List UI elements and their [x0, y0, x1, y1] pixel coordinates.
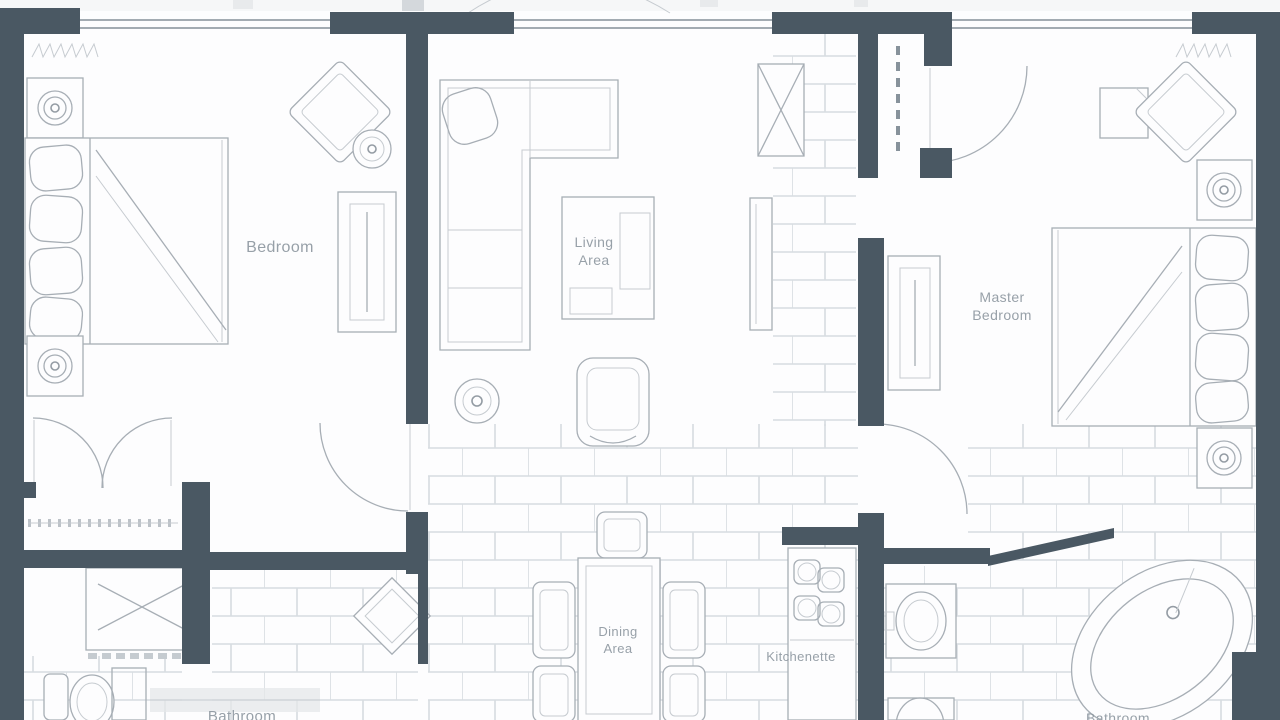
wall [924, 32, 952, 66]
wall [330, 12, 514, 34]
side-table [353, 130, 391, 168]
dining-table [578, 558, 660, 720]
vanity-sink [884, 584, 956, 658]
wall [406, 512, 428, 574]
cut-off-mark [854, 0, 868, 7]
top-margin [0, 0, 1280, 11]
wall [920, 148, 952, 178]
tv-console [750, 198, 772, 330]
wall [858, 238, 884, 426]
wall [884, 548, 990, 564]
dining-area-label-line1: Dining [598, 624, 637, 639]
dining-area-label-line2: Area [603, 641, 632, 656]
vanity-sink [888, 698, 954, 720]
bed [1052, 228, 1256, 426]
dresser [888, 256, 940, 390]
dining-chair [663, 582, 705, 658]
wall [772, 12, 952, 34]
living-area-label-line1: Living [575, 234, 614, 250]
cut-off-mark [402, 0, 424, 11]
dining-chair [533, 582, 575, 658]
wall [406, 32, 428, 424]
nightstand [27, 336, 83, 396]
wall [208, 552, 408, 570]
bed [25, 138, 228, 344]
wall [1232, 652, 1280, 720]
wall-counter-edge [782, 527, 880, 545]
living-area-label-line2: Area [578, 252, 609, 268]
master-bedroom-label-line1: Master [979, 289, 1024, 305]
floor-plan: Bedroom Living Area Master Bedroom Dinin… [0, 0, 1280, 720]
dining-chair [597, 512, 647, 558]
toilet [44, 674, 114, 720]
wall [0, 8, 80, 34]
dining-chair [533, 666, 575, 720]
cut-off-mark [700, 0, 718, 7]
master-bedroom-label-line2: Bedroom [972, 307, 1032, 323]
wall [182, 482, 210, 664]
bathroom-label: Bathroom [208, 708, 276, 720]
armchair [577, 358, 649, 446]
master-bathroom-label: Bathroom [1086, 710, 1150, 720]
nightstand [1197, 160, 1252, 220]
room-kitchenette [788, 548, 856, 720]
kitchenette-label: Kitchenette [766, 649, 835, 664]
wall [0, 10, 24, 720]
bedroom-label: Bedroom [246, 239, 314, 256]
cut-off-mark [233, 0, 253, 9]
nightstand [1197, 428, 1252, 488]
dining-chair [663, 666, 705, 720]
wall [858, 32, 878, 178]
nightstand [27, 78, 83, 138]
wall [24, 550, 184, 568]
wall [1256, 12, 1280, 720]
shower [86, 568, 196, 656]
wall [418, 574, 428, 664]
wall [0, 482, 36, 498]
dresser [338, 192, 396, 332]
floor-lamp [455, 379, 499, 423]
luggage-rack [758, 64, 804, 156]
